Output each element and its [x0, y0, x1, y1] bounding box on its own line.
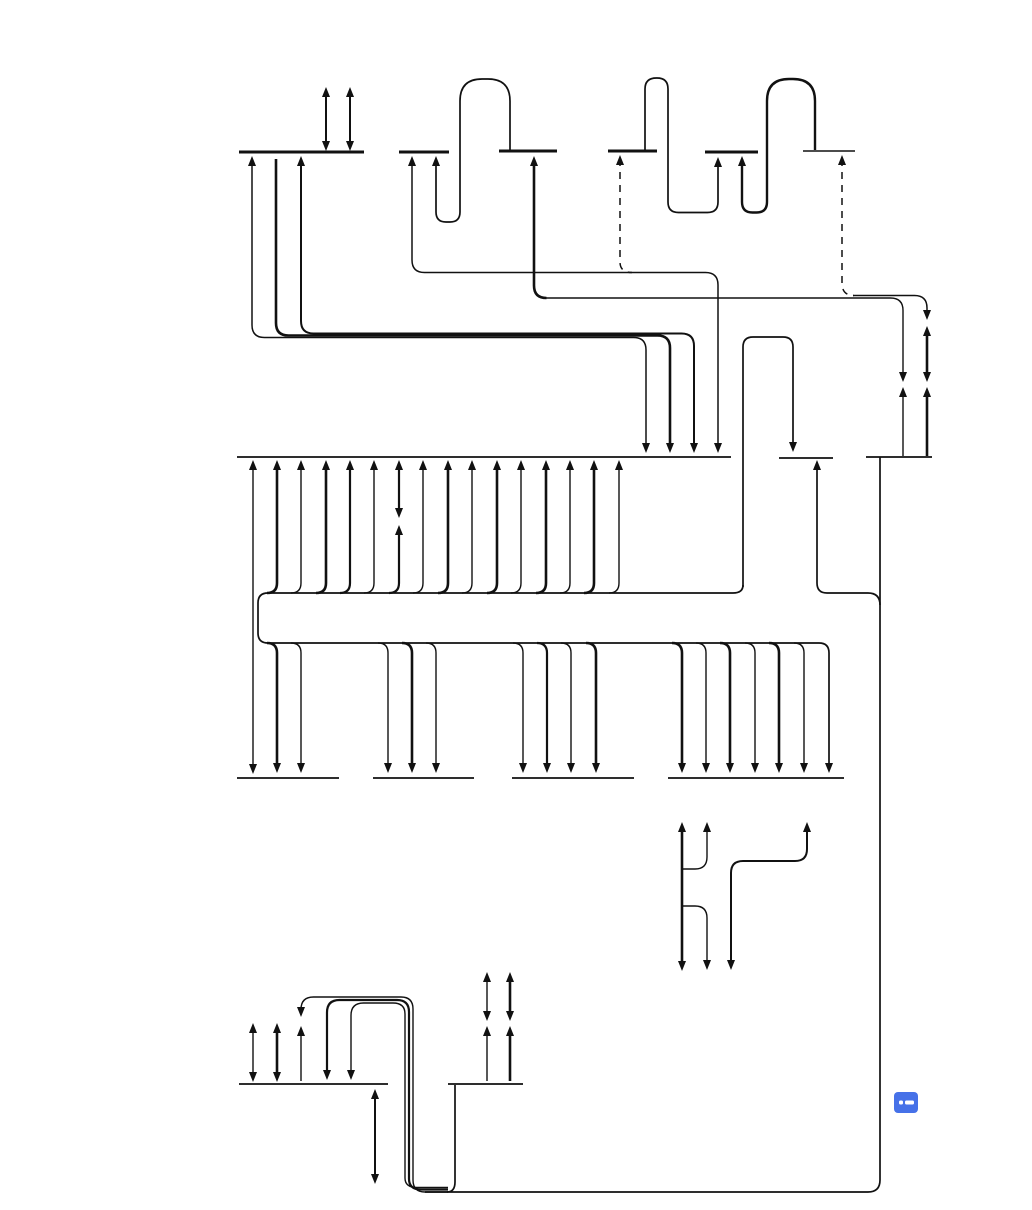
arrowhead-d-42 [789, 442, 797, 452]
arrowhead-u-37 [517, 460, 525, 470]
wire-path-34 [258, 585, 829, 766]
wire-path-28 [487, 464, 497, 593]
wire-path-54 [682, 826, 707, 869]
arrowhead-u-68 [273, 1023, 281, 1033]
wire-path-61 [351, 1003, 448, 1188]
arrowhead-d-50 [543, 763, 551, 773]
wire-path-26 [438, 464, 448, 593]
wire-path-62 [447, 1085, 455, 1192]
wire-path-46 [586, 643, 596, 766]
wiring-diagram [0, 0, 1032, 1210]
arrowhead-u-81 [506, 972, 514, 982]
wire-path-5 [412, 160, 718, 448]
wire-path-19 [291, 464, 301, 593]
arrowhead-u-0 [322, 87, 330, 97]
arrowhead-u-17 [923, 326, 931, 336]
wire-path-20 [316, 464, 326, 593]
arrowhead-u-34 [444, 460, 452, 470]
arrowhead-d-64 [727, 960, 735, 970]
wire-path-55 [682, 906, 707, 964]
arrowhead-d-3 [346, 141, 354, 151]
arrowhead-u-39 [566, 460, 574, 470]
arrowhead-d-59 [825, 763, 833, 773]
arrowhead-d-72 [323, 1070, 331, 1080]
arrowhead-d-6 [666, 443, 674, 453]
wire-path-45 [561, 643, 571, 766]
arrowhead-d-54 [702, 763, 710, 773]
arrowhead-u-22 [738, 156, 746, 166]
wire-path-4 [301, 160, 694, 448]
arrowhead-d-61 [678, 961, 686, 971]
arrowhead-u-14 [899, 387, 907, 397]
arrowhead-d-77 [483, 1011, 491, 1021]
arrowhead-u-43 [813, 460, 821, 470]
arrowhead-u-7 [297, 156, 305, 166]
arrowhead-d-63 [703, 960, 711, 970]
wire-path-41 [402, 643, 412, 766]
arrowhead-d-5 [642, 443, 650, 453]
wire-path-6 [620, 159, 632, 273]
arrowhead-u-62 [703, 822, 711, 832]
arrowhead-d-31 [395, 508, 403, 518]
arrowhead-u-74 [371, 1089, 379, 1099]
marker-dot-glyph [899, 1101, 903, 1105]
arrowhead-d-69 [273, 1072, 281, 1082]
arrowhead-d-13 [899, 372, 907, 382]
arrowhead-u-29 [370, 460, 378, 470]
arrowhead-d-16 [923, 310, 931, 320]
wire-path-31 [560, 464, 570, 593]
wire-path-39 [291, 643, 301, 766]
wire-path-35 [743, 337, 793, 587]
arrowhead-d-49 [519, 763, 527, 773]
wire-path-30 [536, 464, 546, 593]
wire-path-2 [252, 160, 646, 448]
arrowhead-u-19 [923, 387, 931, 397]
wire-path-32 [584, 464, 594, 593]
arrowhead-d-67 [249, 1072, 257, 1082]
arrowhead-u-27 [322, 460, 330, 470]
wire-path-36 [817, 463, 880, 605]
wire-path-50 [745, 643, 755, 766]
arrowhead-u-30 [395, 460, 403, 470]
arrowhead-d-24 [249, 764, 257, 774]
wire-path-48 [696, 643, 706, 766]
arrowhead-u-32 [395, 525, 403, 535]
wire-path-37 [425, 457, 880, 1192]
arrowhead-d-46 [384, 763, 392, 773]
arrowhead-d-10 [714, 443, 722, 453]
diagram-page [0, 0, 1032, 1210]
wire-path-27 [462, 464, 472, 593]
arrowhead-d-18 [923, 372, 931, 382]
arrowhead-u-11 [616, 155, 624, 165]
arrowhead-u-71 [297, 1026, 305, 1036]
comment-marker-icon[interactable] [894, 1092, 918, 1113]
arrowhead-d-52 [592, 763, 600, 773]
arrowhead-d-47 [408, 763, 416, 773]
arrowhead-u-38 [542, 460, 550, 470]
arrowhead-d-45 [297, 763, 305, 773]
arrowhead-u-40 [590, 460, 598, 470]
wire-path-23 [389, 529, 399, 593]
arrowhead-u-33 [419, 460, 427, 470]
wire-path-38 [267, 643, 277, 766]
arrowhead-d-1 [322, 141, 330, 151]
arrowhead-u-66 [249, 1023, 257, 1033]
wire-path-10 [842, 159, 854, 296]
wire-path-49 [720, 643, 730, 766]
wire-path-7 [534, 160, 547, 298]
arrowhead-u-21 [714, 157, 722, 167]
arrowhead-u-78 [483, 972, 491, 982]
arrowhead-d-53 [678, 763, 686, 773]
wire-path-52 [794, 643, 804, 766]
arrowhead-u-36 [493, 460, 501, 470]
arrowhead-d-8 [690, 443, 698, 453]
wire-path-42 [426, 643, 436, 766]
wire-path-25 [413, 464, 423, 593]
arrowhead-u-28 [346, 460, 354, 470]
wire-path-51 [769, 643, 779, 766]
arrowhead-u-41 [615, 460, 623, 470]
arrowhead-u-26 [297, 460, 305, 470]
wire-path-60 [327, 1000, 448, 1190]
arrowhead-d-51 [567, 763, 575, 773]
arrowhead-u-60 [678, 822, 686, 832]
wire-path-21 [340, 464, 350, 593]
arrowhead-d-73 [347, 1070, 355, 1080]
arrowhead-u-15 [838, 155, 846, 165]
wire-path-18 [267, 464, 277, 593]
wire-path-3 [276, 159, 670, 448]
arrowhead-d-44 [273, 763, 281, 773]
arrowhead-u-4 [248, 156, 256, 166]
marker-dash-glyph [905, 1101, 914, 1105]
arrowhead-d-80 [506, 1011, 514, 1021]
arrowhead-u-35 [468, 460, 476, 470]
arrowhead-u-76 [483, 1026, 491, 1036]
arrowhead-d-48 [432, 763, 440, 773]
wire-path-44 [537, 643, 547, 766]
wire-path-29 [511, 464, 521, 593]
arrowhead-d-57 [775, 763, 783, 773]
arrowhead-u-2 [346, 87, 354, 97]
wire-path-43 [513, 643, 523, 766]
arrowhead-d-56 [751, 763, 759, 773]
arrowhead-u-79 [506, 1026, 514, 1036]
arrowhead-u-65 [803, 822, 811, 832]
wire-path-16 [742, 79, 815, 213]
arrowhead-d-75 [371, 1174, 379, 1184]
arrowhead-u-9 [408, 156, 416, 166]
arrowhead-u-25 [273, 460, 281, 470]
wire-path-56 [731, 826, 807, 966]
wire-path-22 [364, 464, 374, 593]
wire-path-15 [645, 78, 718, 213]
arrowhead-u-23 [249, 460, 257, 470]
arrowhead-d-55 [726, 763, 734, 773]
wire-path-40 [378, 643, 388, 766]
arrowhead-d-70 [297, 1007, 305, 1017]
arrowhead-u-20 [432, 156, 440, 166]
arrowhead-d-58 [800, 763, 808, 773]
wire-path-33 [609, 464, 619, 593]
wire-path-47 [672, 643, 682, 766]
arrowhead-u-12 [530, 156, 538, 166]
